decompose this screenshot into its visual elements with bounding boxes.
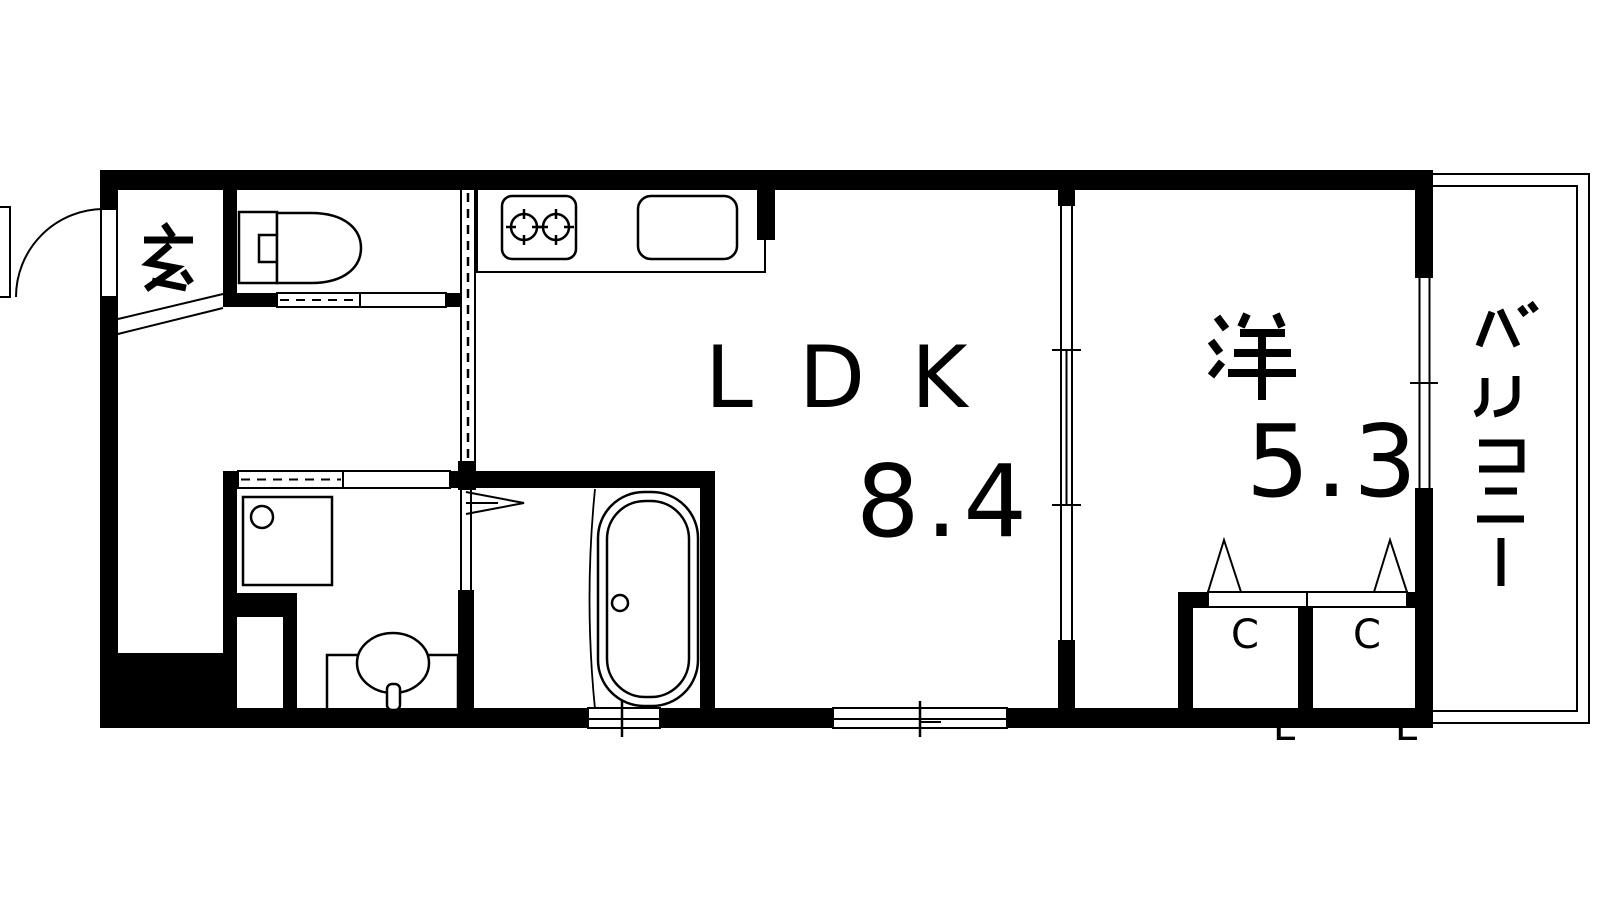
bathroom-right-wall: [700, 471, 715, 708]
toilet-icon: [239, 212, 361, 283]
entrance-door-leaf: [101, 209, 117, 297]
washer-pan-icon: [243, 497, 332, 585]
closet-left-wall: [1178, 592, 1193, 708]
toilet-room-left-wall: [223, 190, 237, 307]
toilet-room: [223, 190, 462, 307]
floorplan: 玄 LDK 8.4 洋 5.3 バルコニー C L C L: [0, 0, 1600, 900]
toilet-bowl: [277, 213, 361, 283]
kitchen-partition: [458, 190, 476, 490]
washbasin-faucet: [387, 684, 400, 710]
kitchen-wall-stub: [757, 190, 775, 240]
porch-edge: [0, 207, 10, 297]
ldk-label: LDK: [705, 334, 1014, 422]
wall-right-lower: [1415, 488, 1433, 728]
kitchen-sink-icon: [638, 196, 737, 259]
ldk-window: [833, 701, 1007, 737]
closet-right-label: C L: [1344, 612, 1390, 750]
room-partition-sliding-door: [1052, 190, 1081, 708]
partition-stub-bottom: [1058, 640, 1075, 708]
toilet-room-bottom-wall-b: [446, 293, 462, 307]
wall-left-lower: [100, 297, 118, 708]
bathtub-apron-line: [590, 489, 596, 709]
closet-left-label: C L: [1222, 612, 1268, 750]
closet-left-door-marker: [1208, 540, 1241, 592]
bathroom-folding-door-icon: [466, 492, 524, 514]
bathtub-icon: [590, 489, 699, 709]
toilet-room-bottom-wall-a: [223, 293, 277, 307]
closet-middle-wall: [1298, 607, 1313, 708]
washroom-sliding-door-panel: [343, 471, 450, 488]
wall-left-upper: [100, 170, 118, 209]
entrance-label: 玄: [140, 224, 196, 282]
bathroom: [450, 471, 715, 737]
entrance-door-arc: [16, 209, 104, 297]
closet-right-door-marker: [1374, 540, 1407, 592]
western-room-label: 洋: [1206, 310, 1296, 402]
western-room-size-label: 5.3: [1246, 412, 1423, 512]
pipe-space-niche: [237, 617, 283, 708]
washbasin-icon: [327, 633, 458, 710]
entrance-step-line2: [118, 308, 223, 334]
toilet-sliding-door-panel: [360, 293, 446, 307]
balcony-label: バルコニー: [1476, 306, 1526, 606]
bathroom-left-wall: [458, 590, 474, 708]
washroom: [100, 471, 458, 710]
kitchen: [477, 190, 775, 272]
wall-right-upper: [1415, 170, 1433, 278]
partition-stub-top: [1058, 190, 1075, 206]
ldk-size-label: 8.4: [856, 452, 1033, 552]
corner-block: [100, 653, 223, 708]
wall-top: [100, 170, 1433, 190]
toilet-flush: [259, 235, 277, 262]
bathroom-top-wall: [450, 471, 715, 488]
entrance-step-line1: [118, 294, 223, 319]
